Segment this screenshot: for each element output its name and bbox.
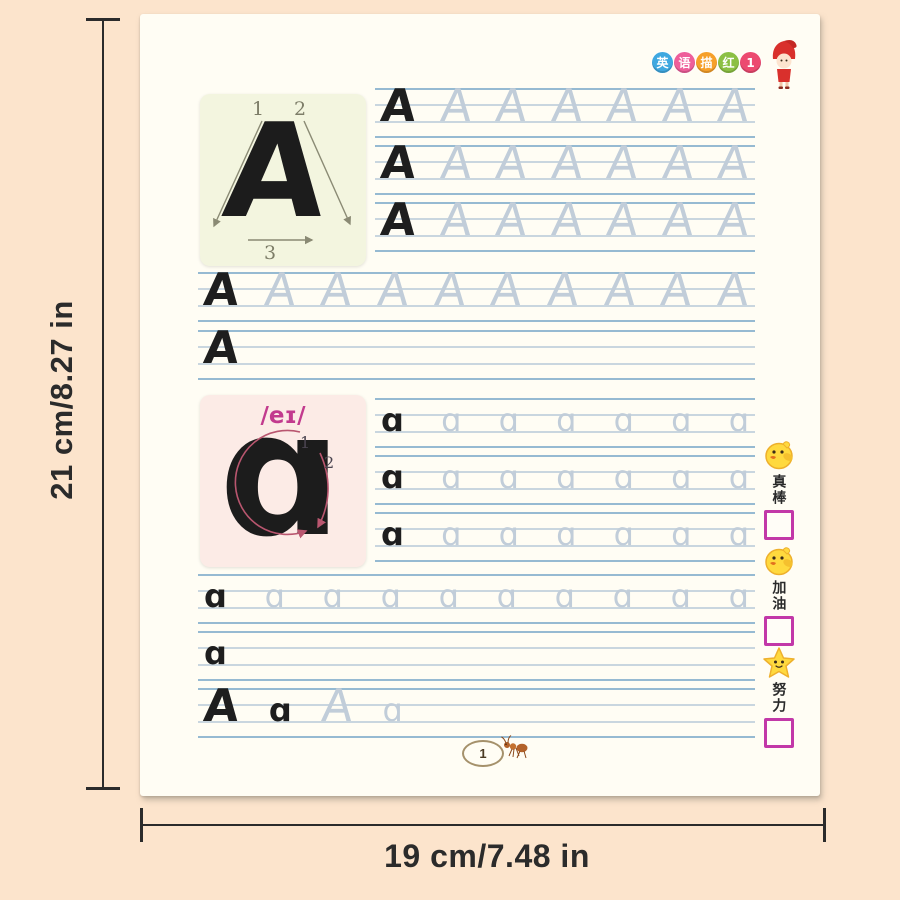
practice-letter-trace: A bbox=[433, 267, 468, 312]
practice-letter-trace: ɑ bbox=[671, 518, 691, 550]
practice-letter-trace: ɑ bbox=[556, 404, 576, 436]
worksheet-page: 英语描红1 1 2 3 A bbox=[140, 14, 820, 796]
practice-letter-trace: A bbox=[605, 197, 640, 242]
product-photo-canvas: { "annotations": { "height_label": "21 c… bbox=[0, 0, 900, 900]
practice-letter-solid: ɑ bbox=[204, 637, 227, 669]
practice-row: ɑɑɑɑɑɑɑ bbox=[375, 512, 755, 562]
practice-letter-trace: ɑ bbox=[614, 404, 634, 436]
practice-letter-trace: A bbox=[319, 267, 354, 312]
chick-icon bbox=[762, 544, 796, 578]
practice-letter-trace: ɑ bbox=[499, 461, 519, 493]
practice-letter-trace: ɑ bbox=[729, 404, 749, 436]
uppercase-letter-card: 1 2 3 A bbox=[200, 94, 366, 266]
practice-row: AAAAAAA bbox=[375, 145, 755, 195]
red-hood-girl-icon bbox=[765, 38, 803, 90]
practice-letter-trace: ɑ bbox=[323, 580, 343, 612]
practice-letter-trace: A bbox=[546, 267, 581, 312]
practice-letter-trace: A bbox=[716, 140, 751, 185]
practice-letter-solid: A bbox=[379, 197, 418, 242]
width-dimension-line bbox=[141, 824, 825, 826]
logo-badge: 英 bbox=[652, 52, 673, 73]
practice-row: ɑɑɑɑɑɑɑ bbox=[375, 455, 755, 505]
practice-letter-trace: A bbox=[661, 140, 696, 185]
practice-letter-trace: ɑ bbox=[441, 404, 461, 436]
practice-letter-solid: ɑ bbox=[269, 694, 292, 726]
practice-letter-solid: A bbox=[202, 683, 241, 728]
practice-letter-trace: A bbox=[376, 267, 411, 312]
practice-letter-solid: A bbox=[379, 140, 418, 185]
practice-letter-trace: ɑ bbox=[671, 404, 691, 436]
practice-letter-trace: A bbox=[439, 83, 474, 128]
width-dimension-label: 19 cm/7.48 in bbox=[384, 838, 590, 875]
practice-letter-trace: A bbox=[550, 83, 585, 128]
practice-letter-trace: ɑ bbox=[381, 580, 401, 612]
practice-letter-trace: ɑ bbox=[497, 580, 517, 612]
stroke-number: 1 bbox=[300, 435, 310, 451]
ant-icon bbox=[500, 732, 530, 760]
practice-letter-trace: A bbox=[439, 140, 474, 185]
practice-letter-trace: ɑ bbox=[614, 461, 634, 493]
practice-letter-solid: ɑ bbox=[381, 404, 404, 436]
practice-letter-trace: ɑ bbox=[265, 580, 285, 612]
practice-letter-trace: ɑ bbox=[671, 461, 691, 493]
practice-letter-trace: ɑ bbox=[729, 518, 749, 550]
practice-letter-trace: A bbox=[603, 267, 638, 312]
practice-letter-trace: A bbox=[716, 267, 751, 312]
practice-letter-trace: A bbox=[494, 197, 529, 242]
practice-letter-trace: ɑ bbox=[671, 580, 691, 612]
practice-letter-trace: ɑ bbox=[383, 694, 403, 726]
model-letter-uppercase: A bbox=[219, 106, 331, 236]
practice-letter-trace: ɑ bbox=[729, 580, 749, 612]
practice-row: AɑAɑ bbox=[198, 688, 755, 738]
practice-letter-trace: A bbox=[605, 140, 640, 185]
practice-letter-solid: A bbox=[202, 325, 241, 370]
practice-letter-trace: A bbox=[494, 83, 529, 128]
practice-letter-trace: A bbox=[439, 197, 474, 242]
badge-checkbox bbox=[764, 718, 794, 748]
practice-letter-solid: A bbox=[202, 267, 241, 312]
practice-letter-trace: ɑ bbox=[613, 580, 633, 612]
logo-badge: 红 bbox=[718, 52, 739, 73]
badge-checkbox bbox=[764, 616, 794, 646]
practice-row: AAAAAAA bbox=[375, 88, 755, 138]
stroke-number: 2 bbox=[324, 455, 334, 471]
practice-row: ɑɑɑɑɑɑɑɑɑɑ bbox=[198, 574, 755, 624]
badge-label: 真棒 bbox=[771, 474, 788, 506]
practice-letter-trace: ɑ bbox=[729, 461, 749, 493]
practice-letter-solid: ɑ bbox=[204, 580, 227, 612]
practice-letter-trace: ɑ bbox=[614, 518, 634, 550]
practice-letter-trace: ɑ bbox=[439, 580, 459, 612]
practice-letter-trace: A bbox=[263, 267, 298, 312]
practice-letter-trace: ɑ bbox=[556, 518, 576, 550]
stroke-order-arrows bbox=[200, 395, 366, 567]
practice-letter-trace: A bbox=[489, 267, 524, 312]
reward-badge-group: 加油 bbox=[756, 544, 802, 646]
logo-badge: 描 bbox=[696, 52, 717, 73]
practice-letter-trace: ɑ bbox=[556, 461, 576, 493]
practice-letter-trace: A bbox=[716, 83, 751, 128]
page-number: 1 bbox=[462, 740, 504, 767]
practice-letter-trace: ɑ bbox=[555, 580, 575, 612]
reward-badge-group: 努力 bbox=[756, 646, 802, 748]
practice-letter-trace: A bbox=[320, 683, 355, 728]
practice-letter-trace: A bbox=[550, 197, 585, 242]
logo-badge: 语 bbox=[674, 52, 695, 73]
practice-letter-trace: A bbox=[661, 197, 696, 242]
practice-letter-trace: A bbox=[494, 140, 529, 185]
practice-letter-solid: ɑ bbox=[381, 461, 404, 493]
practice-row: AAAAAAA bbox=[375, 202, 755, 252]
practice-letter-trace: A bbox=[716, 197, 751, 242]
logo-badges: 英语描红1 bbox=[652, 52, 761, 73]
practice-row: ɑɑɑɑɑɑɑ bbox=[375, 398, 755, 448]
practice-letter-trace: A bbox=[550, 140, 585, 185]
badge-label: 努力 bbox=[771, 682, 788, 714]
practice-letter-trace: A bbox=[661, 83, 696, 128]
star-icon bbox=[762, 646, 796, 680]
badge-checkbox bbox=[764, 510, 794, 540]
badge-label: 加油 bbox=[771, 580, 788, 612]
practice-row: ɑ bbox=[198, 631, 755, 681]
practice-letter-trace: ɑ bbox=[441, 518, 461, 550]
reward-badge-group: 真棒 bbox=[756, 438, 802, 540]
logo-badge: 1 bbox=[740, 52, 761, 73]
practice-letter-trace: A bbox=[659, 267, 694, 312]
chick-icon bbox=[762, 438, 796, 472]
practice-letter-solid: ɑ bbox=[381, 518, 404, 550]
practice-row: A bbox=[198, 330, 755, 380]
height-dimension-line bbox=[102, 19, 104, 789]
practice-letter-solid: A bbox=[379, 83, 418, 128]
height-dimension-label: 21 cm/8.27 in bbox=[44, 300, 80, 500]
practice-letter-trace: ɑ bbox=[499, 518, 519, 550]
lowercase-letter-card: /eɪ/ ɑ 1 2 bbox=[200, 395, 366, 567]
practice-letter-trace: ɑ bbox=[499, 404, 519, 436]
practice-letter-trace: A bbox=[605, 83, 640, 128]
practice-letter-trace: ɑ bbox=[441, 461, 461, 493]
practice-row: AAAAAAAAAA bbox=[198, 272, 755, 322]
